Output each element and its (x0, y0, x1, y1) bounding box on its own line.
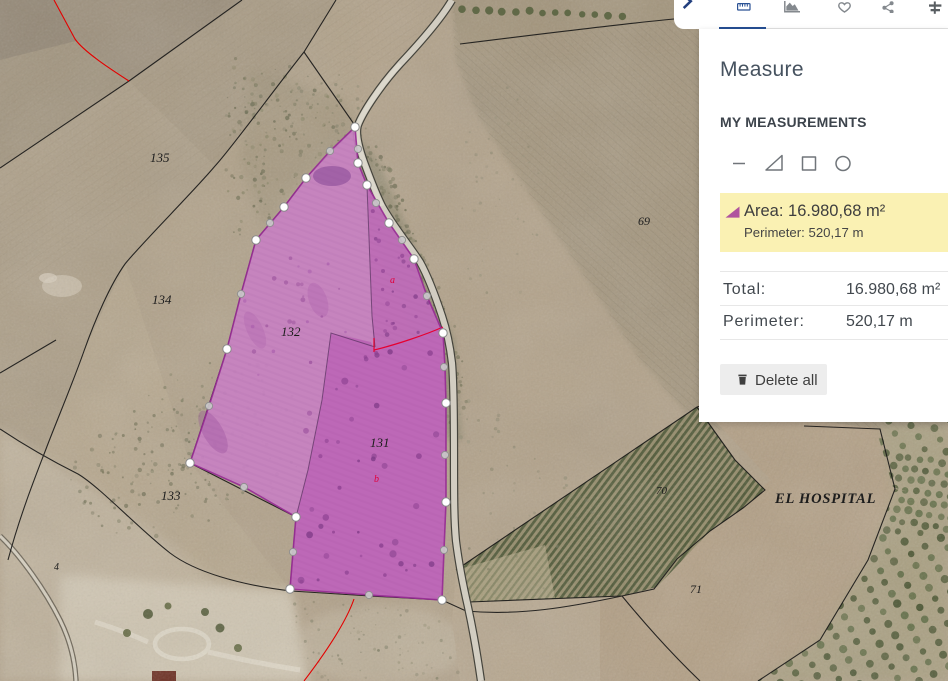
svg-text:131: 131 (370, 435, 390, 450)
svg-text:134: 134 (152, 292, 172, 307)
svg-text:135: 135 (150, 150, 170, 165)
svg-text:133: 133 (161, 488, 181, 503)
svg-text:71: 71 (690, 582, 702, 596)
svg-text:4: 4 (54, 562, 59, 573)
svg-text:a: a (390, 275, 395, 286)
svg-text:70: 70 (656, 485, 668, 497)
svg-text:132: 132 (281, 324, 301, 339)
svg-text:b: b (374, 474, 379, 485)
svg-text:EL HOSPITAL: EL HOSPITAL (774, 491, 876, 507)
svg-text:69: 69 (638, 214, 650, 228)
